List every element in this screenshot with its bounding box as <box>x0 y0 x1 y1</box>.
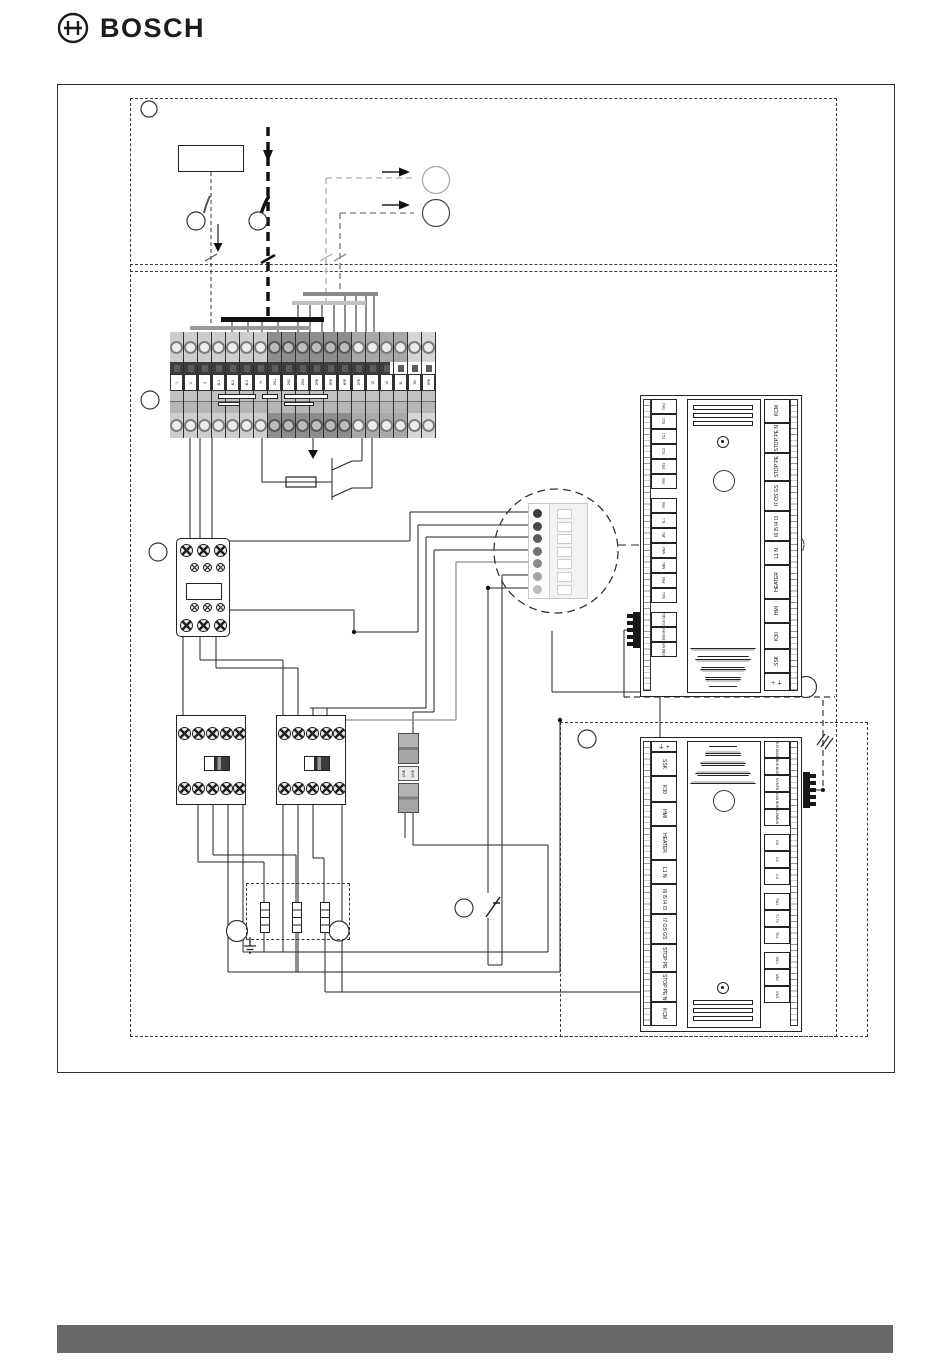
board-connector-label: TC1 <box>651 429 677 444</box>
terminal-clamp-top <box>268 332 281 362</box>
control-board-top: TW1TC0TC1TC3TR3TR5TR6TL1JR1MK2MB1PK5SO1S… <box>640 395 802 697</box>
terminal-column: 3N <box>408 332 422 438</box>
board-connector-label: I6 I5 I4 I3 <box>651 884 677 914</box>
contactor-main <box>176 538 230 637</box>
terminal-label: 15 <box>366 374 379 391</box>
terminal-label: 4L1 <box>212 374 225 391</box>
contactor-heater-2 <box>276 715 346 805</box>
pin-numbers-column <box>643 399 651 691</box>
board-connector-label: I16 <box>764 834 790 851</box>
terminal-clamp-top <box>254 332 267 362</box>
contactor-window <box>186 583 222 600</box>
board-connector-label: TC3 <box>651 444 677 459</box>
terminal-label: 3L <box>394 374 407 391</box>
bosch-emblem-icon <box>56 11 90 45</box>
board-connector-label: TW1 <box>764 893 790 910</box>
board-connector-label: STOP PE N <box>764 423 790 453</box>
control-board-bottom: ⏚ + SSKK30HMIHEATERL1 NI6 I5 I4 I3I7 OS … <box>640 737 802 1032</box>
terminal-column: 3PE <box>324 332 338 438</box>
board-symbol-cell: + ⏚ <box>764 673 790 691</box>
board-connector-label: MK2 <box>651 543 677 558</box>
board-connector-label: I14 <box>764 868 790 885</box>
board-bottom-left-strip: ⏚ + SSKK30HMIHEATERL1 NI6 I5 I4 I3I7 OS … <box>643 741 677 1026</box>
meter-component <box>178 145 244 172</box>
contactor-window <box>304 756 330 771</box>
heater-element <box>260 902 270 933</box>
page: BOSCH <box>0 0 950 1367</box>
board-connector-label: HMI <box>651 802 677 826</box>
board-connector-label: L1 N <box>764 541 790 565</box>
edge-connector <box>803 772 810 808</box>
board-connector-label: HMI <box>764 599 790 623</box>
terminal-clamp-top <box>352 332 365 362</box>
terminal-clamp-bottom <box>408 413 421 438</box>
board-top-left-strip: TW1TC0TC1TC3TR3TR5TR6TL1JR1MK2MB1PK5SO1S… <box>643 399 677 691</box>
board-connector-label: I7 OS GS <box>764 481 790 511</box>
contactor-window <box>204 756 230 771</box>
terminal-label: 3 <box>198 374 211 391</box>
board-connector-label: TC0 <box>651 414 677 429</box>
pin-numbers-column <box>643 741 651 1026</box>
terminal-column: 3 <box>198 332 212 438</box>
board-connector-label: STOP PE <box>651 944 677 972</box>
terminal-label: 2N1 <box>268 374 281 391</box>
heater-element <box>320 902 330 933</box>
terminal-label: 2PE <box>310 374 323 391</box>
board-connector-label: STB8 MVC <box>651 627 677 642</box>
contactor-heater-1 <box>176 715 246 805</box>
terminal-label: 5PE <box>422 374 435 391</box>
terminal-jumper <box>284 394 328 399</box>
terminal-clamp-top <box>184 332 197 362</box>
terminal-clamp-top <box>380 332 393 362</box>
terminal-clamp-bottom <box>380 413 393 438</box>
terminal-clamp-bottom <box>422 413 435 438</box>
bosch-logo: BOSCH <box>56 8 376 48</box>
terminal-clamp-bottom <box>324 413 337 438</box>
din-terminal: 1/NE2/NE <box>398 733 419 813</box>
terminal-clamp-top <box>338 332 351 362</box>
terminal-jumper <box>284 402 314 406</box>
terminal-column: 2N2 <box>282 332 296 438</box>
terminal-clamp-top <box>282 332 295 362</box>
board-symbol-cell: ⏚ + <box>651 741 677 752</box>
terminal-column: 2N3 <box>296 332 310 438</box>
terminal-label: N <box>254 374 267 391</box>
terminal-jumper <box>218 394 256 399</box>
terminal-label: 3PE <box>324 374 337 391</box>
terminal-column: 4PE <box>338 332 352 438</box>
terminal-jumper <box>262 394 278 399</box>
board-hole <box>713 470 735 492</box>
terminal-column: 3L <box>394 332 408 438</box>
terminal-column: 2 <box>184 332 198 438</box>
terminal-clamp-top <box>310 332 323 362</box>
board-connector-label: KCM <box>764 399 790 423</box>
terminal-clamp-bottom <box>394 413 407 438</box>
footer-bar <box>57 1325 893 1353</box>
board-connector-label: MB1 <box>651 558 677 573</box>
board-connector-label: SD08 SD18 <box>651 612 677 627</box>
edge-connector <box>633 612 640 648</box>
board-connector-label: SSK <box>651 752 677 776</box>
terminal-strip: 1 2 3 4L1 <box>170 332 390 438</box>
terminal-column: 4L2 <box>226 332 240 438</box>
bosch-wordmark: BOSCH <box>100 13 205 44</box>
board-connector-label: STB8 MV3 <box>651 642 677 657</box>
terminal-clamp-bottom <box>310 413 323 438</box>
board-connector-label: MK2 <box>764 969 790 986</box>
terminal-clamp-bottom <box>254 413 267 438</box>
din-terminal-labels: 1/NE2/NE <box>398 766 419 781</box>
board-connector-label: KCM <box>651 1002 677 1026</box>
board-connector-label: I6 I5 I4 I3 <box>764 511 790 541</box>
terminal-column: 2PE <box>310 332 324 438</box>
terminal-label: 3N <box>408 374 421 391</box>
connector-pins <box>529 504 549 598</box>
busbar-gray-dark <box>303 292 378 296</box>
board-connector-label: T1 T0 <box>764 910 790 927</box>
board-connector-label: TW1 <box>651 399 677 414</box>
board-bottom-pcb <box>687 741 761 1028</box>
board-connector-label: TR5 <box>651 474 677 489</box>
board-connector-label: CANBUS <box>764 809 790 826</box>
terminal-column: 4L1 <box>212 332 226 438</box>
terminal-clamp-top <box>198 332 211 362</box>
terminal-clamp-top <box>408 332 421 362</box>
terminal-column: 4L3 <box>240 332 254 438</box>
terminal-label: 4PE <box>338 374 351 391</box>
terminal-clamp-top <box>422 332 435 362</box>
board-connector-label: VW1 <box>764 986 790 1003</box>
board-connector-label: K30 <box>651 776 677 802</box>
busbar-gray-light <box>292 301 366 305</box>
board-connector-label: JR1 <box>651 528 677 543</box>
terminal-label: 1PE <box>352 374 365 391</box>
terminal-clamp-bottom <box>198 413 211 438</box>
terminal-clamp-top <box>226 332 239 362</box>
terminal-column: 16 <box>380 332 394 438</box>
board-connector-label: HEATER <box>651 826 677 860</box>
terminal-jumper <box>218 402 240 406</box>
board-connector-label: BUS DIAG <box>764 741 790 758</box>
board-connector-label: SSK <box>764 649 790 673</box>
terminal-column: 1PE <box>352 332 366 438</box>
board-connector-label: I15 <box>764 851 790 868</box>
terminal-clamp-top <box>212 332 225 362</box>
terminal-clamp-bottom <box>296 413 309 438</box>
terminal-clamp-top <box>170 332 183 362</box>
board-connector-label: BUS BUS <box>764 758 790 775</box>
terminal-columns: 1 2 3 4L1 <box>170 332 436 438</box>
terminal-clamp-bottom <box>338 413 351 438</box>
terminal-column: N <box>254 332 268 438</box>
board-connector-label: TR3 <box>651 459 677 474</box>
terminal-clamp-bottom <box>282 413 295 438</box>
terminal-clamp-bottom <box>212 413 225 438</box>
terminal-clamp-top <box>366 332 379 362</box>
terminal-label: 1 <box>170 374 183 391</box>
board-connector-label: STOP PE <box>764 453 790 481</box>
terminal-clamp-bottom <box>240 413 253 438</box>
terminal-clamp-top <box>296 332 309 362</box>
board-connector-label: I7 OS GS <box>651 914 677 944</box>
connector-detail <box>528 503 588 599</box>
board-connector-label: PK5 <box>651 573 677 588</box>
board-connector-label: CAN BUS <box>764 792 790 809</box>
terminal-clamp-bottom <box>366 413 379 438</box>
terminal-label: 16 <box>380 374 393 391</box>
busbar-black <box>221 317 324 322</box>
board-hole <box>713 790 735 812</box>
board-connector-label: MC1 <box>764 952 790 969</box>
board-connector-label: TL1 <box>651 513 677 528</box>
terminal-clamp-bottom <box>226 413 239 438</box>
heater-element <box>292 902 302 933</box>
supply-zone-box <box>130 98 837 272</box>
board-connector-label: TC1 <box>764 927 790 944</box>
terminal-column: 1 <box>170 332 184 438</box>
pin-numbers-column <box>790 741 798 1026</box>
terminal-label: 4L3 <box>240 374 253 391</box>
pin-numbers-column <box>790 399 798 691</box>
terminal-label: 2N2 <box>282 374 295 391</box>
terminal-clamp-bottom <box>184 413 197 438</box>
connector-housing <box>549 504 587 598</box>
board-connector-label: NVMTB <box>764 775 790 792</box>
terminal-column: 5PE <box>422 332 436 438</box>
board-connector-label: HEATER <box>764 565 790 599</box>
board-connector-label: TR6 <box>651 498 677 513</box>
terminal-clamp-top <box>394 332 407 362</box>
terminal-label: 4L2 <box>226 374 239 391</box>
terminal-column: 2N1 <box>268 332 282 438</box>
terminal-clamp-top <box>324 332 337 362</box>
board-connector-label: SO1 <box>651 588 677 603</box>
terminal-clamp-bottom <box>268 413 281 438</box>
board-connector-label: K30 <box>764 623 790 649</box>
terminal-clamp-top <box>240 332 253 362</box>
terminal-clamp-bottom <box>352 413 365 438</box>
board-top-pcb <box>687 399 761 693</box>
terminal-column: 15 <box>366 332 380 438</box>
board-top-right-strip: KCMSTOP PE NSTOP PEI7 OS GSI6 I5 I4 I3L1… <box>764 399 798 691</box>
busbar-gray <box>190 326 311 330</box>
terminal-label: 2N3 <box>296 374 309 391</box>
terminal-label: 2 <box>184 374 197 391</box>
board-connector-label: STOP PE N <box>651 972 677 1002</box>
terminal-clamp-bottom <box>170 413 183 438</box>
board-bottom-right-strip: BUS DIAGBUS BUSNVMTBCAN BUSCANBUSI16I15I… <box>764 741 798 1026</box>
board-connector-label: L1 N <box>651 860 677 884</box>
